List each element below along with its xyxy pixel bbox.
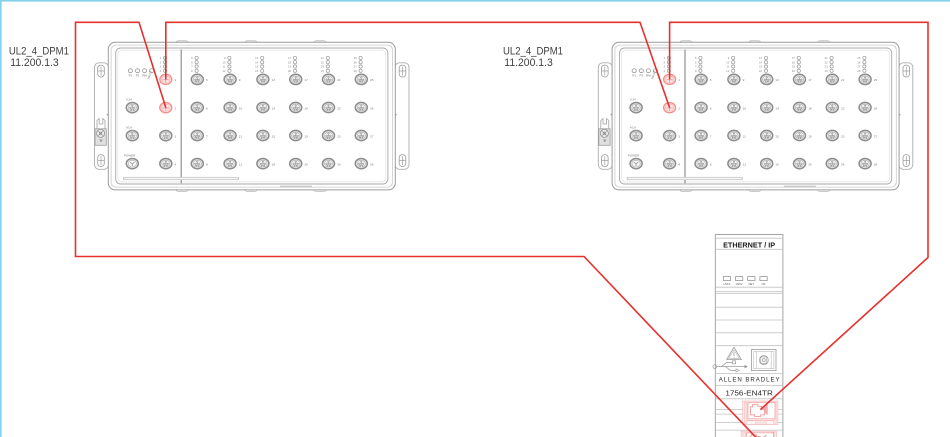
svg-text:12: 12 [239,162,243,166]
svg-text:ALLEN BRADLEY: ALLEN BRADLEY [719,377,781,384]
svg-text:2: 2 [678,106,680,110]
svg-text:P2: P2 [136,73,140,77]
svg-text:25: 25 [874,78,878,82]
svg-text:22: 22 [841,106,845,110]
svg-text:22: 22 [337,106,341,110]
svg-text:14: 14 [775,106,779,110]
svg-text:21: 21 [337,78,341,82]
svg-text:11: 11 [743,134,746,138]
svg-text:24: 24 [321,69,325,73]
svg-text:POWER: POWER [124,154,136,158]
svg-text:23: 23 [841,134,845,138]
svg-text:1: 1 [175,78,177,82]
svg-text:ACA: ACA [630,126,636,130]
svg-text:19: 19 [304,134,308,138]
svg-text:6: 6 [710,106,712,110]
svg-text:P2: P2 [640,73,644,77]
svg-text:3: 3 [678,134,680,138]
svg-text:15: 15 [775,134,779,138]
svg-text:12: 12 [222,69,226,73]
svg-text:11.200.1.3: 11.200.1.3 [504,57,553,69]
svg-text:4: 4 [175,162,177,166]
svg-text:7: 7 [710,134,712,138]
svg-text:26: 26 [370,106,374,110]
svg-text:24: 24 [337,162,341,166]
svg-text:17: 17 [808,78,812,82]
svg-text:27: 27 [370,134,374,138]
svg-text:P1: P1 [129,73,133,77]
svg-text:16: 16 [759,69,763,73]
svg-text:19: 19 [808,134,812,138]
svg-text:25: 25 [370,78,374,82]
svg-text:10: 10 [743,106,747,110]
svg-text:V.24: V.24 [630,98,636,102]
svg-text:ETHERNET / IP: ETHERNET / IP [723,242,775,250]
svg-text:17: 17 [304,78,308,82]
svg-text:28: 28 [874,162,878,166]
svg-text:20: 20 [288,69,292,73]
svg-text:9: 9 [743,78,745,82]
svg-text:15: 15 [272,134,276,138]
svg-text:28: 28 [370,162,374,166]
svg-text:16: 16 [255,69,259,73]
svg-text:LNK2: LNK2 [736,282,743,286]
svg-text:23: 23 [337,134,341,138]
svg-text:LNK1: LNK1 [724,282,731,286]
svg-text:V.24: V.24 [126,98,132,102]
svg-text:24: 24 [841,162,845,166]
svg-text:12: 12 [726,69,730,73]
svg-text:8: 8 [206,162,208,166]
svg-text:2: 2 [175,106,177,110]
svg-text:12: 12 [743,162,747,166]
svg-text:OK: OK [762,282,766,286]
svg-text:20: 20 [808,162,812,166]
svg-text:1756-EN4TR: 1756-EN4TR [725,389,773,398]
svg-text:16: 16 [775,162,779,166]
svg-text:5: 5 [710,78,712,82]
svg-text:21: 21 [841,78,845,82]
svg-text:NET: NET [749,282,755,286]
svg-text:1: 1 [678,78,680,82]
svg-text:6: 6 [206,106,208,110]
svg-text:UL2_4_DPM1: UL2_4_DPM1 [503,45,563,57]
svg-text:18: 18 [808,106,812,110]
svg-text:11: 11 [239,134,242,138]
svg-text:27: 27 [874,134,878,138]
svg-text:POWER: POWER [628,154,640,158]
svg-text:UL2_4_DPM1: UL2_4_DPM1 [9,45,69,57]
svg-text:4: 4 [678,162,680,166]
svg-text:7: 7 [206,134,208,138]
svg-text:13: 13 [272,78,276,82]
svg-text:ACA: ACA [126,126,132,130]
svg-text:9: 9 [239,78,241,82]
svg-text:26: 26 [874,106,878,110]
svg-text:16: 16 [272,162,276,166]
svg-text:3: 3 [175,134,177,138]
svg-text:13: 13 [775,78,779,82]
svg-text:28: 28 [354,69,358,73]
svg-text:28: 28 [857,69,861,73]
svg-text:10: 10 [239,106,243,110]
svg-text:20: 20 [304,162,308,166]
svg-text:P1: P1 [632,73,636,77]
svg-text:24: 24 [825,69,829,73]
svg-text:14: 14 [272,106,276,110]
svg-text:11.200.1.3: 11.200.1.3 [10,57,59,69]
svg-text:5: 5 [206,78,208,82]
svg-text:18: 18 [304,106,308,110]
svg-text:20: 20 [792,69,796,73]
svg-text:8: 8 [710,162,712,166]
